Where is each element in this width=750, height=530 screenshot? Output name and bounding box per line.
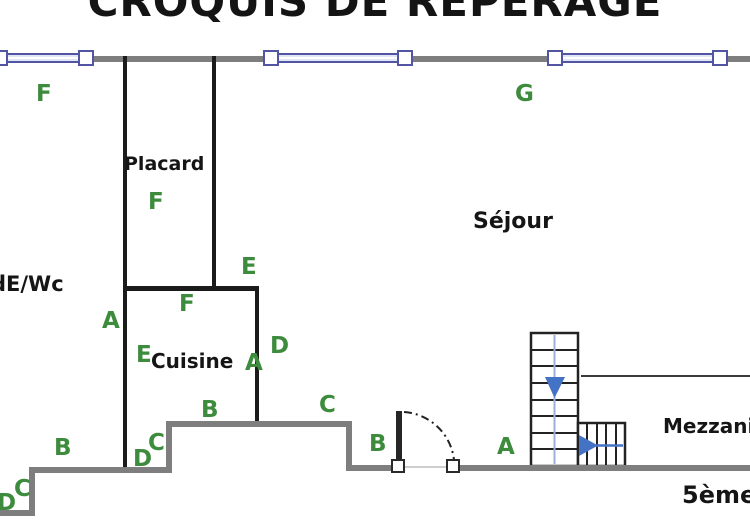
marker-C-step-upper: C: [319, 394, 336, 417]
wall-step-vertical-1: [166, 421, 172, 473]
door-swing-arc: [404, 412, 454, 460]
room-label-sejour: Séjour: [473, 211, 553, 233]
marker-E-kitchen-wall: E: [241, 256, 257, 279]
door-leaf: [396, 411, 402, 459]
marker-A-left-wall: A: [102, 310, 120, 333]
floor-label: 5ème: [682, 483, 750, 507]
marker-E-kitchen-inner: E: [136, 344, 152, 367]
floor-plan-sketch: CROQUIS DE REPÉRAGE: [0, 0, 750, 530]
door-hinge-icon: [391, 459, 405, 473]
marker-D-step-inner: D: [133, 448, 152, 471]
wall-bottom-left-of-door: [346, 465, 396, 471]
room-label-placard: Placard: [124, 155, 204, 174]
marker-D-bottom-left: D: [0, 492, 16, 515]
door-hinge-icon: [446, 459, 460, 473]
marker-F-kitchen: F: [179, 293, 195, 316]
marker-D-kitchen-right: D: [270, 335, 289, 358]
top-wall-segment-3: [727, 56, 750, 62]
marker-F-window: F: [36, 83, 52, 106]
wall-step-vertical-3: [346, 421, 352, 471]
top-wall-segment-1: [93, 56, 263, 62]
marker-F-placard: F: [148, 191, 164, 214]
top-wall-segment-2: [412, 56, 547, 62]
room-label-cuisine: Cuisine: [151, 351, 233, 371]
wall-placard-right: [212, 56, 216, 289]
window-post-icon: [547, 50, 563, 66]
window-post-icon: [397, 50, 413, 66]
staircase-turn-icon: [578, 423, 625, 466]
window-post-icon: [263, 50, 279, 66]
marker-A-kitchen-right: A: [245, 352, 263, 375]
room-label-bathroom: dE/Wc: [0, 274, 64, 295]
window-post-icon: [712, 50, 728, 66]
window-post-icon: [78, 50, 94, 66]
marker-G-window: G: [515, 83, 534, 106]
marker-B-door: B: [369, 433, 387, 456]
wall-step-upper: [166, 421, 352, 427]
marker-C-step-lower: C: [14, 478, 31, 501]
marker-A-stairs: A: [497, 436, 515, 459]
marker-B-step-lower: B: [54, 437, 72, 460]
window-post-icon: [0, 50, 8, 66]
room-label-mezzanine: Mezzanine: [663, 416, 750, 436]
wall-bottom-right: [454, 465, 750, 471]
wall-placard-left: [123, 56, 127, 472]
staircase-down-icon: [531, 333, 578, 466]
marker-B-step-upper: B: [201, 399, 219, 422]
